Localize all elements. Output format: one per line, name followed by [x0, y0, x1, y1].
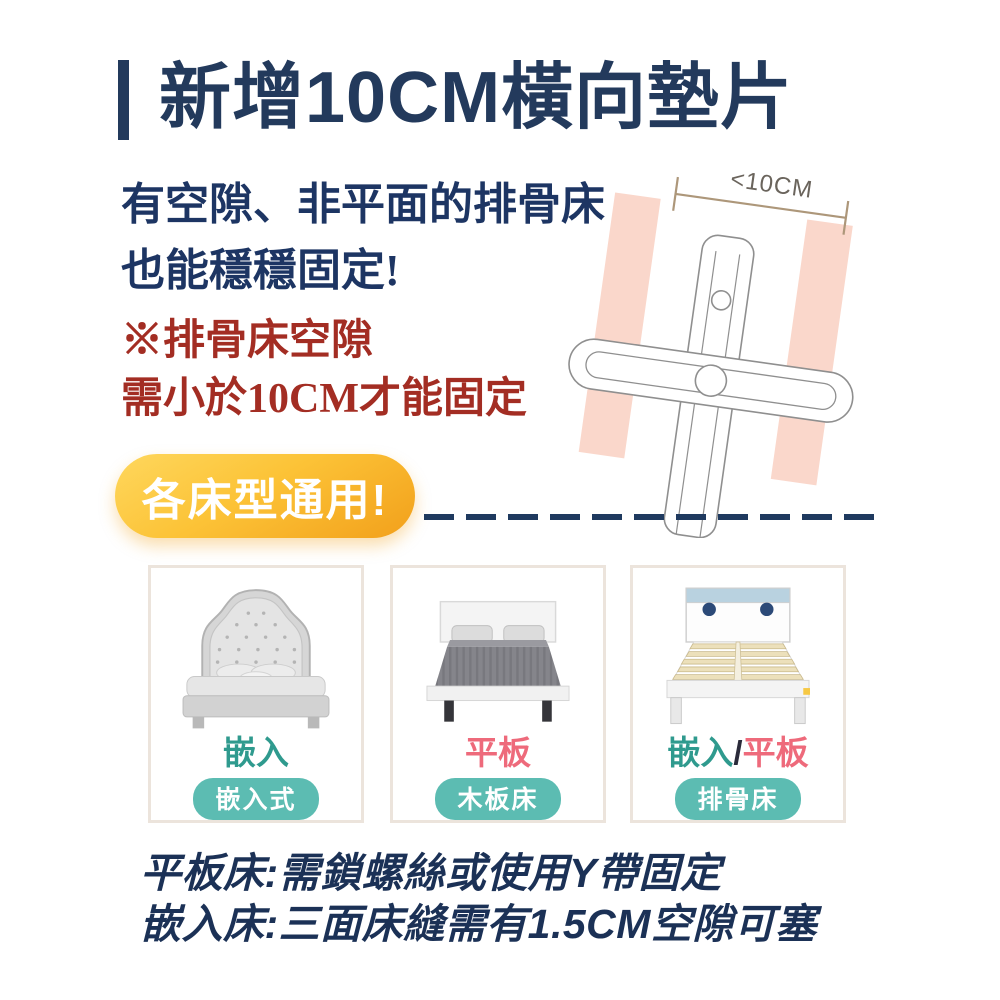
platform-bed-image	[402, 574, 594, 733]
page-title-text: 新增10CM橫向墊片	[159, 59, 793, 138]
card-flat-label: 平板	[465, 733, 531, 773]
intro-line-1: 有空隙、非平面的排骨床	[121, 172, 605, 238]
slatted-bed-image	[642, 574, 834, 733]
promo-page: 新增10CM橫向墊片 有空隙、非平面的排骨床 也能穩穩固定! ※排骨床空隙 需小…	[0, 0, 1000, 1000]
title-accent-bar	[118, 60, 129, 140]
card-slatted-label-separator: /	[733, 734, 742, 771]
bed-slat-left	[579, 192, 661, 458]
card-slatted-badge: 排骨床	[675, 778, 800, 820]
universal-fit-badge: 各床型通用!	[115, 454, 415, 538]
bed-card-slatted: 嵌入/平板 排骨床	[630, 565, 846, 823]
card-slatted-label-embed: 嵌入	[667, 734, 733, 771]
bed-card-flat: 平板 木板床	[390, 565, 606, 823]
card-slatted-label-flat: 平板	[743, 734, 809, 771]
card-flat-badge: 木板床	[435, 778, 560, 820]
bed-card-embedded: 嵌入 嵌入式	[148, 565, 364, 823]
footnotes: 平板床:需鎖螺絲或使用Y帶固定 嵌入床:三面床縫需有1.5CM空隙可塞	[140, 848, 817, 950]
card-slatted-label: 嵌入/平板	[667, 733, 808, 773]
intro-line-2: 也能穩穩固定!	[121, 238, 605, 304]
bed-slat-right	[771, 219, 853, 485]
footnote-flat-bed: 平板床:需鎖螺絲或使用Y帶固定	[140, 848, 817, 899]
card-embedded-label: 嵌入	[223, 733, 289, 773]
universal-fit-badge-label: 各床型通用!	[142, 464, 389, 528]
intro-text: 有空隙、非平面的排骨床 也能穩穩固定!	[121, 172, 605, 304]
dashed-divider	[424, 514, 878, 520]
page-title: 新增10CM橫向墊片	[118, 58, 793, 140]
note-line-1: ※排骨床空隙	[121, 312, 527, 370]
warning-note: ※排骨床空隙 需小於10CM才能固定	[121, 312, 527, 428]
note-line-2: 需小於10CM才能固定	[121, 370, 527, 428]
gap-measure-label: <10CM	[729, 166, 815, 204]
card-embedded-badge: 嵌入式	[193, 778, 318, 820]
spacer-diagram: <10CM	[545, 160, 890, 538]
upholstered-bed-image	[160, 574, 352, 733]
footnote-embedded-bed: 嵌入床:三面床縫需有1.5CM空隙可塞	[140, 899, 817, 950]
